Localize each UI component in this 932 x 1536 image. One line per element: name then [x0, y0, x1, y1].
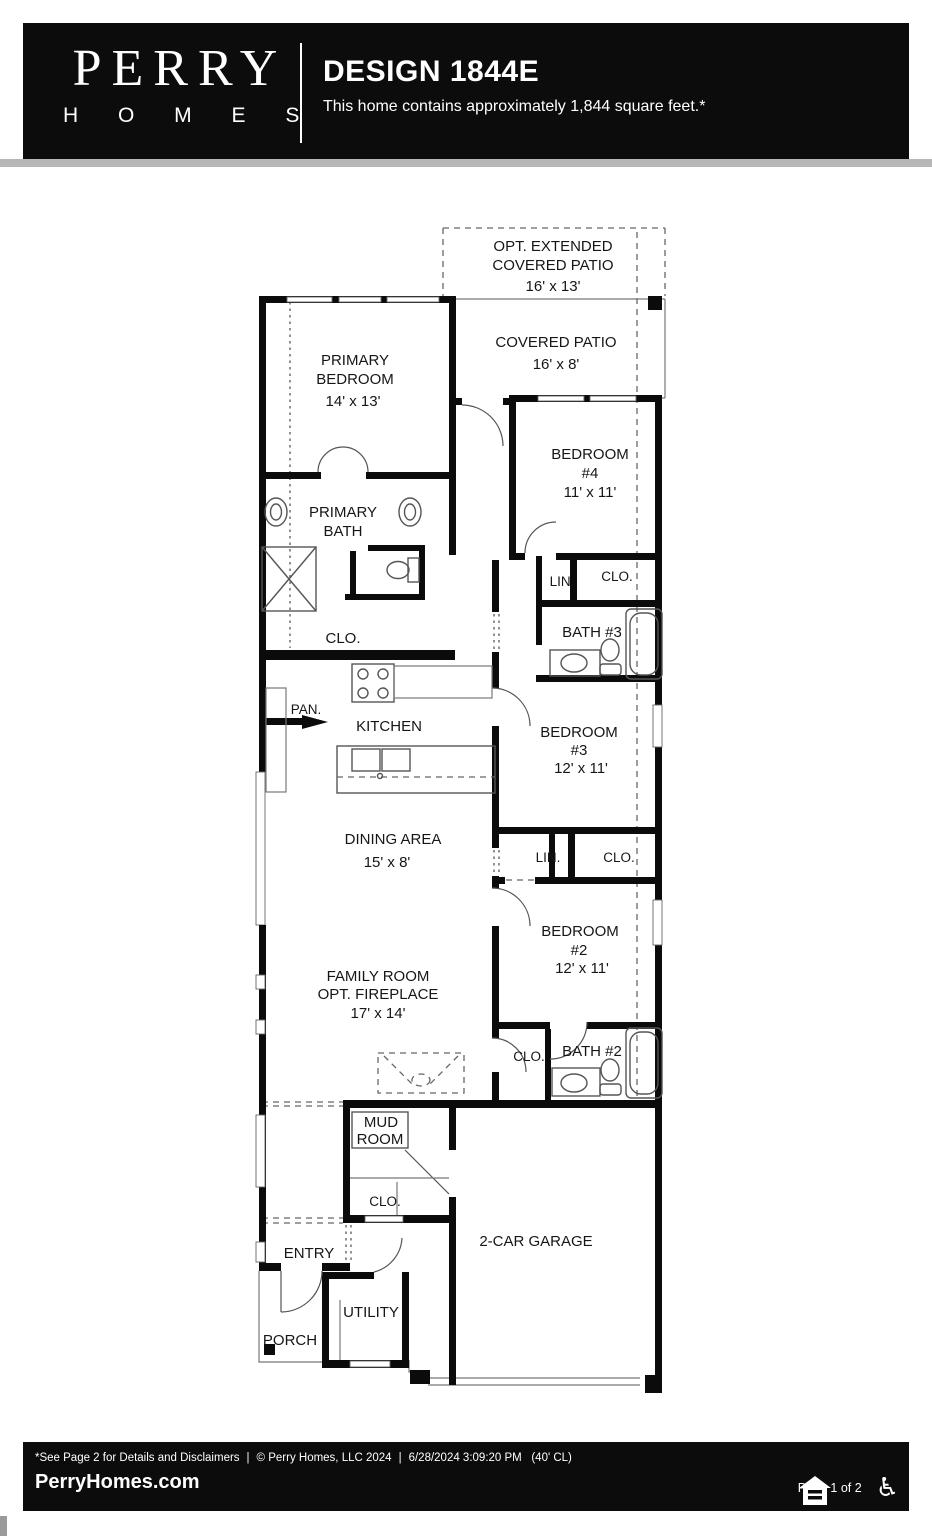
bath2-label: BATH #2 [562, 1043, 622, 1060]
covered-patio-label: COVERED PATIO [495, 334, 616, 351]
footer-copyright: © Perry Homes, LLC 2024 [257, 1452, 392, 1464]
family-room-dims: 17' x 14' [351, 1005, 406, 1022]
bedroom2-number: #2 [571, 942, 588, 959]
entry-label: ENTRY [284, 1245, 335, 1262]
dining-dims: 15' x 8' [364, 854, 411, 871]
family-room-label: FAMILY ROOM [327, 968, 430, 985]
footer-disclaimer-line: *See Page 2 for Details and Disclaimers|… [35, 1452, 572, 1464]
primary-bedroom-label: PRIMARY [321, 352, 389, 369]
primary-closet-label: CLO. [325, 630, 360, 647]
header-rule [0, 159, 932, 167]
pantry-label: PAN. [291, 702, 322, 717]
bedroom2-dims: 12' x 11' [555, 960, 609, 977]
linen2-label: LIN. [536, 850, 561, 865]
primary-bath-label: PRIMARY [309, 504, 377, 521]
bedroom2-label: BEDROOM [541, 923, 619, 940]
footer-disclaimer: *See Page 2 for Details and Disclaimers [35, 1452, 240, 1464]
floorplan-page: OPT. EXTENDED COVERED PATIO 16' x 13' CO… [0, 0, 932, 1536]
footer-lot-note: (40' CL) [531, 1452, 572, 1464]
logo-perry: PERRY [55, 41, 305, 97]
footer-timestamp: 6/28/2024 3:09:20 PM [409, 1452, 522, 1464]
website-link[interactable]: PerryHomes.com [35, 1471, 200, 1494]
perry-homes-logo: PERRY H O M E S [55, 41, 305, 131]
family-room-label2: OPT. FIREPLACE [318, 986, 439, 1003]
corner-mark [0, 1516, 7, 1536]
accessibility-icon: ♿ [876, 1475, 899, 1501]
floor-plan: OPT. EXTENDED COVERED PATIO 16' x 13' CO… [0, 0, 932, 1536]
page-subtitle: This home contains approximately 1,844 s… [323, 98, 705, 116]
kitchen-counter-left [266, 688, 286, 792]
bedroom3-label: BEDROOM [540, 724, 618, 741]
utility-label: UTILITY [343, 1304, 399, 1321]
primary-bedroom-dims: 14' x 13' [326, 393, 381, 410]
header-banner: PERRY H O M E S DESIGN 1844E This home c… [23, 23, 909, 159]
footer-separator: | [247, 1452, 250, 1464]
kitchen-label: KITCHEN [356, 718, 422, 735]
bedroom4-dims: 11' x 11' [564, 484, 617, 501]
page-title: DESIGN 1844E [323, 55, 705, 89]
toilet-icon [387, 558, 419, 582]
footer-banner: *See Page 2 for Details and Disclaimers|… [23, 1442, 909, 1511]
equal-housing-icon [798, 1475, 832, 1507]
bath2-fixtures [552, 1028, 662, 1098]
logo-homes: H O M E S [55, 101, 305, 131]
closet4-label: CLO. [369, 1194, 401, 1209]
title-block: DESIGN 1844E This home contains approxim… [323, 55, 705, 116]
closet2-label: CLO. [603, 850, 635, 865]
primary-bath-label2: BATH [324, 523, 363, 540]
linen1-label: LIN. [550, 574, 575, 589]
footer-right-group: Page 1 of 2 ♿ [798, 1475, 899, 1501]
opt-fireplace-outline [378, 1053, 464, 1093]
kitchen-island [337, 746, 495, 793]
kitchen-counter [394, 666, 492, 698]
opt-patio-dims: 16' x 13' [526, 278, 581, 295]
covered-patio-dims: 16' x 8' [533, 356, 580, 373]
stove-icon [352, 664, 394, 702]
logo-divider [300, 43, 302, 143]
bedroom3-dims: 12' x 11' [554, 760, 608, 777]
dining-label: DINING AREA [345, 831, 442, 848]
garage-label: 2-CAR GARAGE [479, 1233, 592, 1250]
closet3-label: CLO. [513, 1049, 545, 1064]
mud-room-label: MUD [364, 1114, 398, 1131]
bath3-label: BATH #3 [562, 624, 622, 641]
footer-separator: | [399, 1452, 402, 1464]
opt-patio-label: OPT. EXTENDED [493, 238, 612, 255]
porch-label: PORCH [263, 1332, 317, 1349]
opt-patio-label2: COVERED PATIO [492, 257, 613, 274]
bedroom3-number: #3 [571, 742, 588, 759]
bedroom4-number: #4 [582, 465, 599, 482]
primary-bedroom-label2: BEDROOM [316, 371, 394, 388]
bath3-fixtures [550, 609, 662, 679]
bedroom4-label: BEDROOM [551, 446, 629, 463]
closet1-label: CLO. [601, 569, 633, 584]
mud-room-label2: ROOM [357, 1131, 404, 1148]
shower-icon [262, 547, 316, 611]
